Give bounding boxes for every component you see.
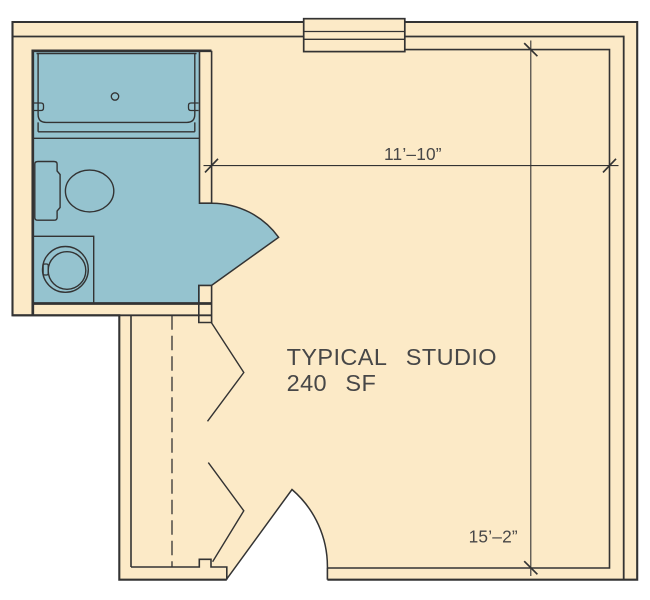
svg-text:11’–10”: 11’–10” [384, 144, 442, 164]
svg-text:240 SF: 240 SF [287, 370, 377, 396]
svg-text:TYPICAL STUDIO: TYPICAL STUDIO [287, 344, 497, 370]
svg-text:15’–2”: 15’–2” [469, 526, 518, 546]
